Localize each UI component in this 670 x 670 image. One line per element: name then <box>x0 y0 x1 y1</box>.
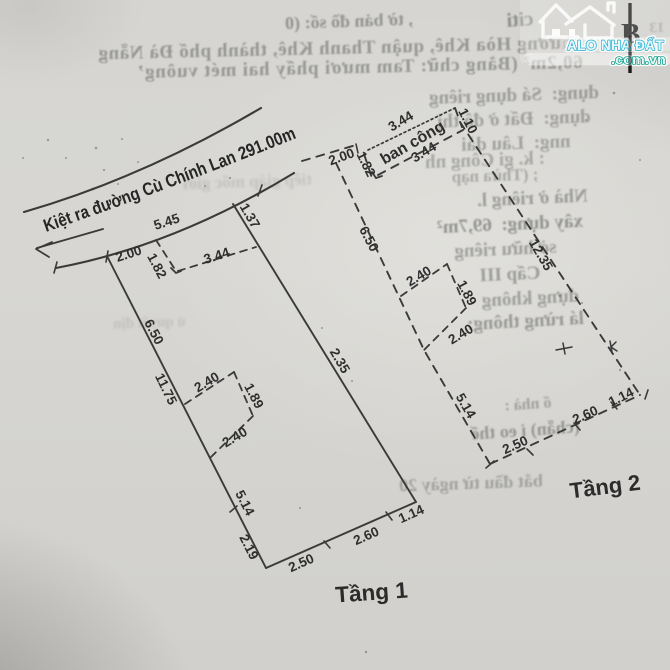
svg-text:ALO NHA ĐẤT: ALO NHA ĐẤT <box>567 38 664 53</box>
svg-text:.com.vn: .com.vn <box>611 52 666 67</box>
